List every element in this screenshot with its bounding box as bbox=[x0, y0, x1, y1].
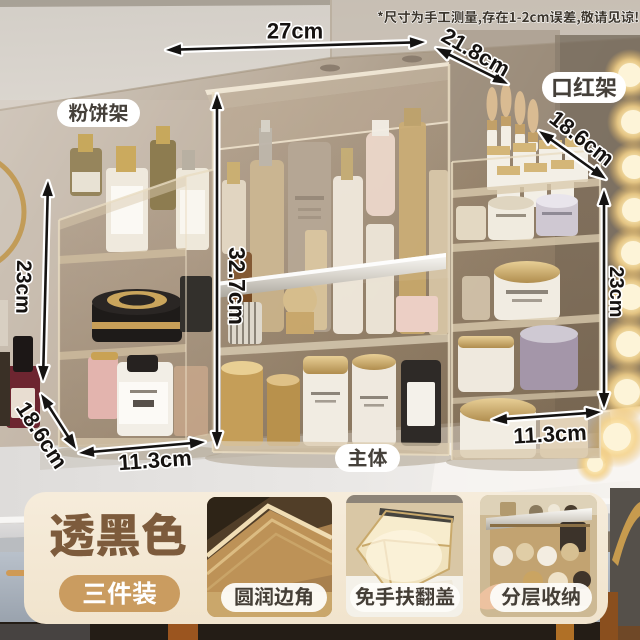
svg-text:23cm: 23cm bbox=[605, 266, 627, 317]
svg-text:11.3cm: 11.3cm bbox=[513, 420, 588, 449]
svg-text:11.3cm: 11.3cm bbox=[118, 445, 193, 475]
svg-text:23cm: 23cm bbox=[11, 260, 35, 314]
svg-text:32.7cm: 32.7cm bbox=[224, 247, 250, 325]
svg-text:27cm: 27cm bbox=[267, 19, 323, 44]
